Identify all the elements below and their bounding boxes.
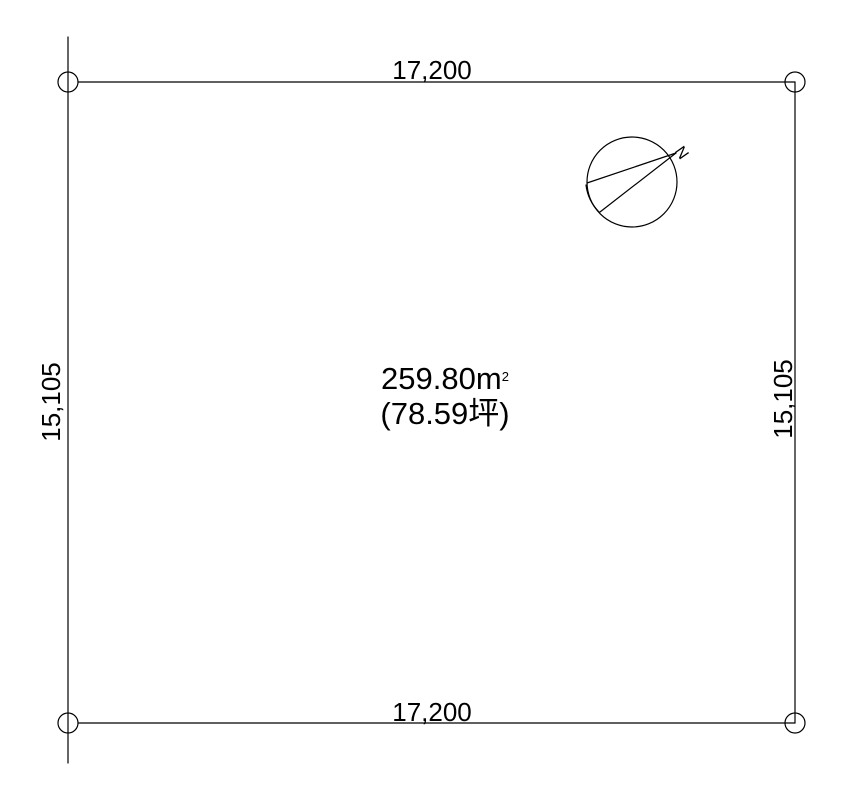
area-unit: m [476, 361, 502, 396]
north-label: N [671, 143, 692, 162]
dimension-label-left: 15,105 [38, 362, 64, 442]
area-unit-superscript: 2 [502, 369, 509, 384]
dimension-label-top: 17,200 [392, 57, 472, 83]
compass-needle-lower-line [600, 153, 676, 212]
area-tsubo: (78.59坪) [380, 397, 509, 432]
dimension-label-right: 15,105 [770, 359, 796, 439]
area-square-meters: 259.80m2 [380, 362, 509, 397]
compass-circle [587, 137, 677, 227]
site-plan-drawing: N 17,200 17,200 15,105 15,105 259.80m2 (… [0, 0, 848, 805]
area-value: 259.80 [381, 361, 476, 396]
area-label: 259.80m2 (78.59坪) [380, 362, 509, 431]
dimension-label-bottom: 17,200 [392, 699, 472, 725]
compass-needle-upper-line [587, 153, 676, 183]
north-compass: N [586, 137, 691, 227]
